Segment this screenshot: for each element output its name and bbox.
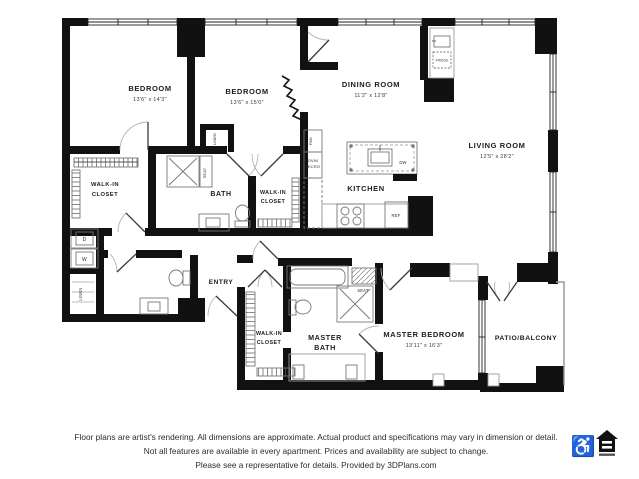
seat-master-label: SEAT (357, 288, 369, 293)
walk-in-closet-3-label-line2: CLOSET (257, 340, 282, 346)
wheelchair-accessible-icon: ♿ (571, 434, 596, 458)
toilet (289, 300, 311, 315)
fridge-small-label: FRIDGE (436, 59, 449, 63)
bedroom2-label: BEDROOM (225, 87, 268, 96)
footer-disclaimer-line1: Floor plans are artist's rendering. All … (74, 432, 557, 442)
bedroom-cabinet (450, 264, 478, 281)
closet-rail (246, 292, 255, 366)
footer-disclaimer-line2: Not all features are available in every … (144, 446, 489, 456)
wall-notch (433, 374, 444, 386)
patio-balcony-label: PATIO/BALCONY (495, 335, 557, 342)
closet-shelf (72, 170, 80, 218)
doors (110, 32, 517, 354)
kitchen-label: KITCHEN (347, 184, 385, 193)
floor-plan: BEDROOM 13'6" x 14'3" BEDROOM 13'6" x 15… (0, 0, 639, 479)
dining-room-dims: 11'2" x 12'8" (354, 93, 387, 99)
linen-lower-label: LINEN (78, 287, 83, 300)
pantry-label: PAN (309, 137, 313, 145)
linen-shelves (72, 282, 94, 302)
wall-notch (488, 374, 499, 386)
footer-disclaimer-line3: Please see a representative for details.… (195, 460, 436, 470)
master-bedroom-dims: 13'11" x 16'3" (406, 343, 443, 349)
equal-housing-icon (596, 430, 618, 456)
walk-in-closet-1-label-line1: WALK-IN (91, 182, 119, 188)
shower (337, 268, 376, 322)
closet-rail (257, 368, 295, 376)
master-bath-label-line1: MASTER (308, 333, 342, 342)
washer-label: W (82, 257, 87, 263)
walk-in-closet-3-label-line1: WALK-IN (256, 331, 282, 337)
master-bath-label-line2: BATH (314, 343, 336, 352)
linen-upper-label: LINEN (213, 133, 217, 145)
walk-in-closet-1-label-line2: CLOSET (92, 192, 118, 198)
bedroom2-dims: 13'6" x 15'0" (230, 100, 264, 106)
sink-vanity (289, 354, 365, 381)
bathtub (287, 266, 348, 288)
entry-label: ENTRY (209, 279, 234, 286)
master-bedroom-label: MASTER BEDROOM (383, 330, 464, 339)
bedroom1-dims: 13'6" x 14'3" (133, 97, 167, 103)
seat-bath-label: SEAT (202, 167, 207, 178)
toilet (169, 270, 190, 286)
jagged-wall (282, 76, 302, 120)
dryer-label: D (83, 237, 87, 243)
closet-rail (292, 178, 299, 222)
refrigerator-label: REF (392, 213, 401, 218)
closet-rail (74, 158, 138, 167)
living-room-dims: 12'5" x 28'2" (480, 154, 514, 160)
toilet (235, 205, 250, 227)
bath-label: BATH (210, 191, 231, 198)
living-room-label: LIVING ROOM (468, 141, 525, 150)
oven-micro-label-line2: MICRO (306, 164, 320, 169)
floor-plan-page: BEDROOM 13'6" x 14'3" BEDROOM 13'6" x 15… (0, 0, 639, 479)
closet-rail (258, 219, 292, 227)
bedroom1-label: BEDROOM (128, 84, 171, 93)
bar-cabinet (430, 28, 454, 78)
walk-in-closet-2-label-line1: WALK-IN (260, 190, 286, 196)
oven-micro-label-line1: OVN/ (308, 158, 319, 163)
sink-vanity (140, 298, 168, 314)
dining-room-label: DINING ROOM (342, 80, 400, 89)
walk-in-closet-2-label-line2: CLOSET (261, 199, 286, 205)
dishwasher-label: DW (399, 160, 406, 165)
